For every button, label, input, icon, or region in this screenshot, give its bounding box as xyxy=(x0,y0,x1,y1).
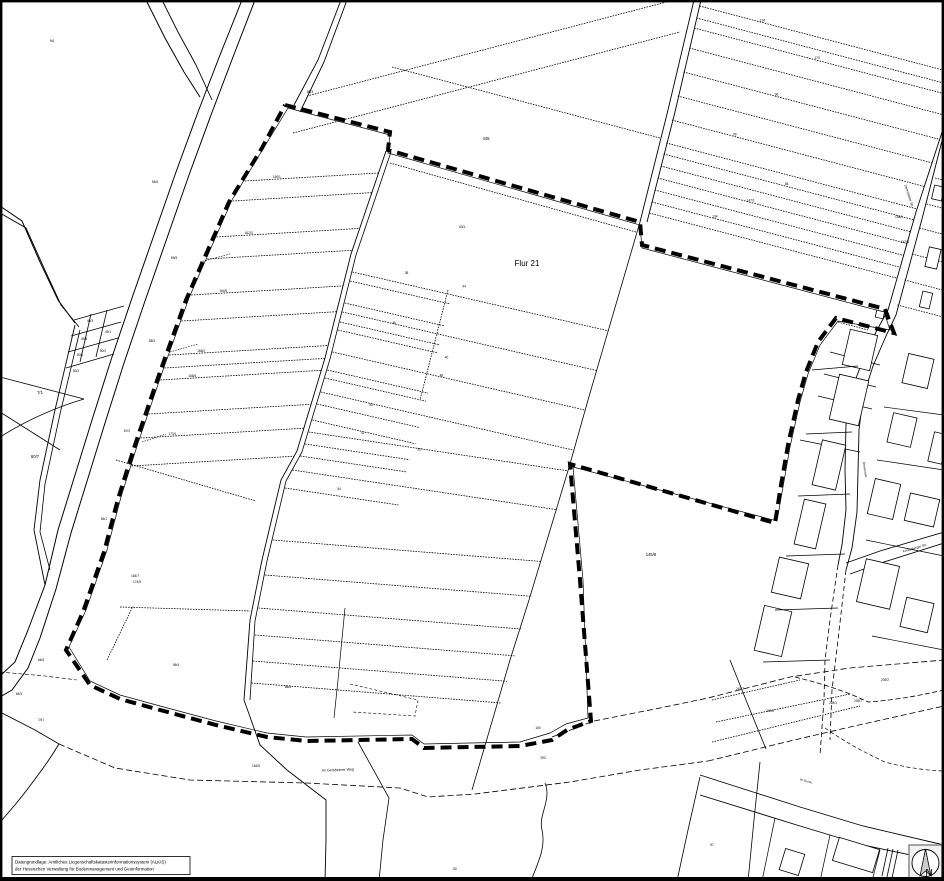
svg-text:228/1: 228/1 xyxy=(829,701,837,705)
svg-text:134: 134 xyxy=(760,18,766,22)
svg-text:145/8: 145/8 xyxy=(646,552,657,557)
svg-text:50/2: 50/2 xyxy=(73,369,79,373)
svg-text:170: 170 xyxy=(815,56,821,60)
svg-text:162/3: 162/3 xyxy=(245,231,253,235)
svg-text:44: 44 xyxy=(462,285,466,289)
svg-text:99: 99 xyxy=(733,132,737,136)
svg-text:49/3: 49/3 xyxy=(87,319,93,323)
svg-text:68/3: 68/3 xyxy=(149,339,155,343)
svg-text:46: 46 xyxy=(392,321,396,325)
svg-text:7/47: 7/47 xyxy=(38,718,44,722)
svg-text:50/1: 50/1 xyxy=(77,353,83,357)
svg-text:148/1: 148/1 xyxy=(895,215,903,219)
svg-text:64/6: 64/6 xyxy=(38,658,44,662)
svg-text:Datengrundlage: Amtliches Lieg: Datengrundlage: Amtliches Liegenschaftsk… xyxy=(15,860,166,865)
svg-text:160: 160 xyxy=(535,726,541,730)
svg-text:48: 48 xyxy=(440,374,444,378)
svg-text:97: 97 xyxy=(710,843,714,847)
svg-text:164/5: 164/5 xyxy=(252,764,260,768)
svg-text:96/4: 96/4 xyxy=(173,663,179,667)
svg-text:293: 293 xyxy=(540,756,546,760)
svg-text:174/5: 174/5 xyxy=(133,580,141,584)
svg-text:42: 42 xyxy=(361,431,365,435)
svg-text:Flur 21: Flur 21 xyxy=(515,259,540,268)
svg-text:60/7: 60/7 xyxy=(31,454,40,459)
svg-text:170/1: 170/1 xyxy=(168,432,176,436)
svg-text:168/4: 168/4 xyxy=(188,374,196,378)
svg-text:96: 96 xyxy=(775,92,779,96)
svg-text:40: 40 xyxy=(445,356,449,360)
svg-text:43/1: 43/1 xyxy=(459,225,466,229)
svg-text:239/2: 239/2 xyxy=(881,678,889,682)
svg-text:50: 50 xyxy=(369,403,373,407)
svg-text:69/5: 69/5 xyxy=(171,256,177,260)
svg-text:164/7: 164/7 xyxy=(131,574,139,578)
svg-text:7/1: 7/1 xyxy=(37,390,43,395)
svg-text:49/4: 49/4 xyxy=(81,337,87,341)
svg-text:64/5: 64/5 xyxy=(16,692,22,696)
svg-text:52: 52 xyxy=(417,448,421,452)
svg-text:66/1: 66/1 xyxy=(101,517,107,521)
svg-text:147/1: 147/1 xyxy=(747,198,755,202)
svg-text:86/3: 86/3 xyxy=(307,90,313,94)
svg-text:49/1: 49/1 xyxy=(105,330,111,334)
svg-text:445: 445 xyxy=(483,136,491,141)
svg-text:der Hessischen Verwaltung für: der Hessischen Verwaltung für Bodenmanag… xyxy=(15,867,154,872)
svg-text:160/1: 160/1 xyxy=(273,175,281,179)
svg-text:94/6: 94/6 xyxy=(152,180,158,184)
svg-text:166/2: 166/2 xyxy=(197,349,205,353)
svg-text:67/2: 67/2 xyxy=(124,429,130,433)
svg-text:94: 94 xyxy=(50,39,54,43)
svg-text:164/5: 164/5 xyxy=(219,289,227,293)
svg-text:240/3: 240/3 xyxy=(766,709,774,713)
svg-text:86/4: 86/4 xyxy=(285,685,291,689)
svg-text:134: 134 xyxy=(712,214,718,218)
svg-text:54: 54 xyxy=(337,487,341,491)
svg-text:60: 60 xyxy=(453,867,457,871)
svg-text:241/7: 241/7 xyxy=(736,687,744,691)
svg-text:50/2: 50/2 xyxy=(100,349,106,353)
svg-text:86: 86 xyxy=(785,182,789,186)
svg-text:239/7: 239/7 xyxy=(854,699,862,703)
svg-text:38: 38 xyxy=(405,271,409,275)
